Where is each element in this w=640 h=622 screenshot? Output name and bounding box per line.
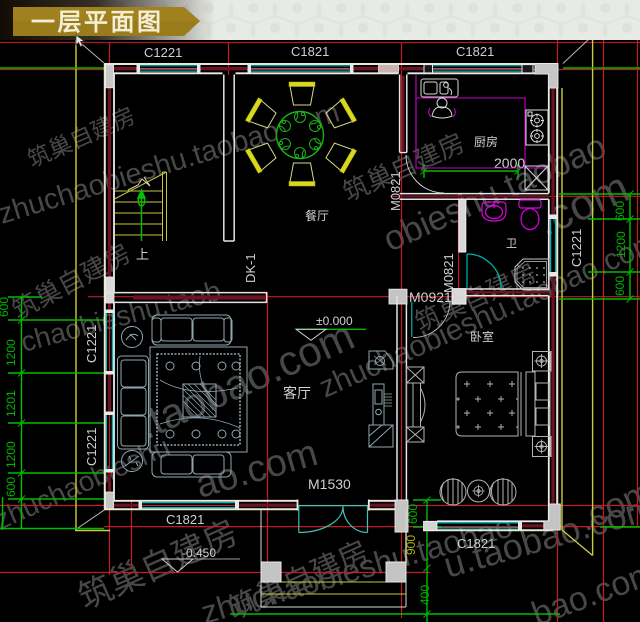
svg-text:卧室: 卧室 — [470, 329, 494, 344]
svg-text:C1821: C1821 — [456, 44, 494, 59]
svg-text:一层平面图: 一层平面图 — [31, 9, 164, 36]
svg-text:C1821: C1821 — [291, 44, 329, 59]
svg-text:餐厅: 餐厅 — [305, 208, 329, 223]
svg-text:1201: 1201 — [4, 390, 18, 417]
svg-text:600: 600 — [4, 477, 18, 497]
svg-text:C1221: C1221 — [569, 229, 584, 267]
svg-text:M0921: M0921 — [409, 289, 452, 305]
svg-text:M0821: M0821 — [441, 253, 456, 293]
svg-text:C1221: C1221 — [84, 428, 99, 466]
svg-text:M1530: M1530 — [308, 476, 351, 492]
svg-text:±0.000: ±0.000 — [316, 314, 353, 328]
svg-text:1200: 1200 — [4, 441, 18, 468]
svg-text:1200: 1200 — [614, 231, 628, 258]
svg-text:-0.450: -0.450 — [182, 546, 216, 560]
svg-text:400: 400 — [418, 585, 432, 605]
svg-text:C1221: C1221 — [144, 45, 182, 60]
svg-text:2000: 2000 — [494, 155, 525, 171]
svg-text:卫: 卫 — [506, 238, 517, 250]
svg-text:C1821: C1821 — [457, 536, 495, 551]
svg-text:DK-1: DK-1 — [243, 253, 258, 283]
svg-text:600: 600 — [0, 297, 11, 317]
svg-text:C1221: C1221 — [84, 325, 99, 363]
svg-text:C1821: C1821 — [166, 512, 204, 527]
svg-text:600: 600 — [613, 276, 627, 296]
svg-text:M0821: M0821 — [388, 171, 403, 211]
svg-text:客厅: 客厅 — [283, 385, 311, 401]
svg-text:600: 600 — [613, 201, 627, 221]
svg-text:600: 600 — [406, 504, 420, 524]
svg-text:上: 上 — [136, 247, 149, 262]
svg-text:1200: 1200 — [4, 339, 18, 366]
svg-text:厨房: 厨房 — [474, 134, 498, 149]
